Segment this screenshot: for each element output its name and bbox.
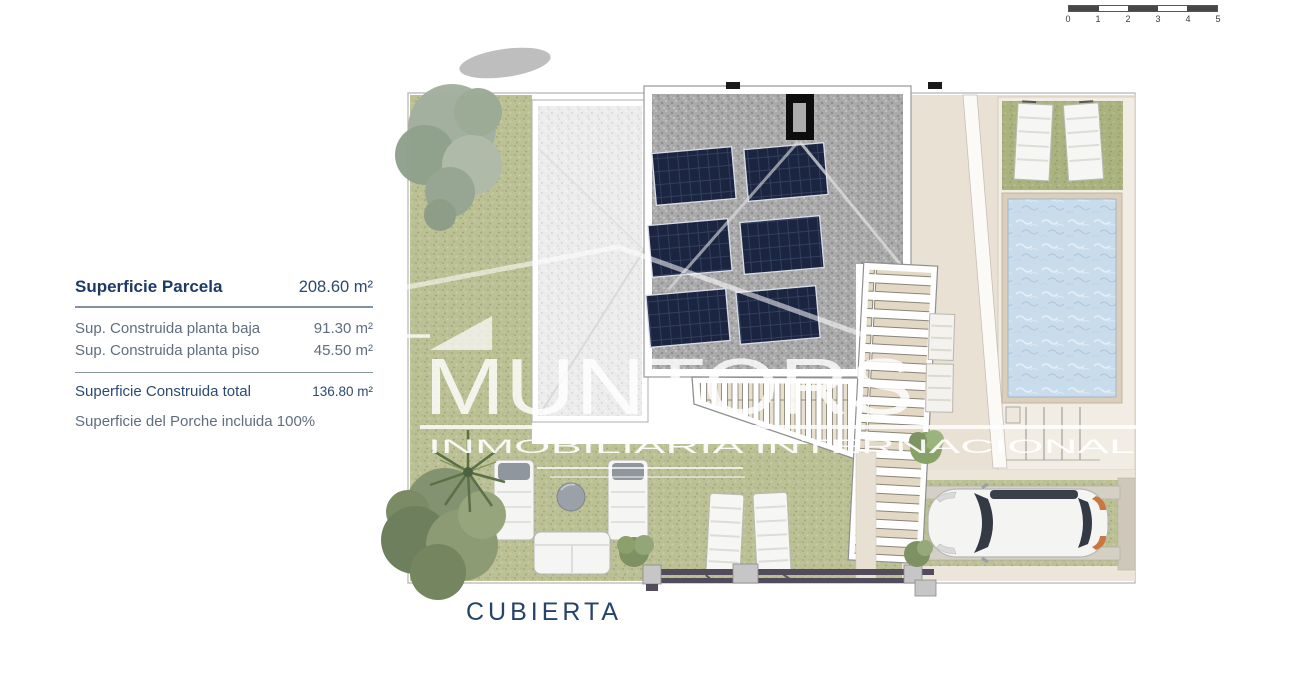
built-ground-floor-row: Sup. Construida planta baja 91.30 m² xyxy=(75,318,373,340)
parcel-surface-row: Superficie Parcela 208.60 m² xyxy=(75,277,373,308)
plan-title: CUBIERTA xyxy=(466,598,622,627)
pool-lounger-1 xyxy=(1014,101,1053,181)
solar-panel xyxy=(646,289,730,348)
fence-post xyxy=(643,565,661,584)
parcel-surface-label: Superficie Parcela xyxy=(75,277,222,297)
round-table xyxy=(557,483,585,511)
solar-panel xyxy=(652,147,736,206)
chaise-right xyxy=(608,460,648,540)
built-upper-floor-row: Sup. Construida planta piso 45.50 m² xyxy=(75,340,373,362)
gate-post xyxy=(733,564,758,583)
built-surface-rows: Sup. Construida planta baja 91.30 m² Sup… xyxy=(75,318,373,373)
watermark-underline xyxy=(420,425,1136,429)
sun-lounger-2 xyxy=(753,492,792,582)
roof-clip-left xyxy=(726,82,740,89)
car-sunroof xyxy=(990,490,1078,499)
tree-shadow xyxy=(457,43,552,84)
car xyxy=(928,484,1108,562)
roof-clip-right xyxy=(928,82,942,89)
solar-panel xyxy=(740,216,824,275)
surface-info-panel: Superficie Parcela 208.60 m² Sup. Constr… xyxy=(75,277,373,430)
driveway-post xyxy=(915,580,936,596)
solar-panel xyxy=(648,219,732,278)
scale-bar-segments xyxy=(1068,5,1218,12)
scale-bar: 0 1 2 3 4 5 xyxy=(1068,5,1218,26)
pool-lounger-2 xyxy=(1063,101,1103,181)
pool-water xyxy=(1008,199,1116,397)
solar-panel xyxy=(744,143,828,202)
folded-lounger-2 xyxy=(926,364,954,412)
folded-lounger-1 xyxy=(928,314,955,361)
watermark-brand: MUNTORS xyxy=(424,342,914,431)
scale-bar-labels: 0 1 2 3 4 5 xyxy=(1068,14,1218,26)
parcel-surface-value: 208.60 m² xyxy=(299,278,373,297)
porch-note: Superficie del Porche incluida 100% xyxy=(75,413,373,430)
garden-path xyxy=(856,452,876,581)
built-total-row: Superficie Construida total 136.80 m² xyxy=(75,383,373,400)
watermark-subtitle: INMOBILIARIA INTERNACIONAL xyxy=(428,436,1135,458)
sofa xyxy=(534,532,610,574)
